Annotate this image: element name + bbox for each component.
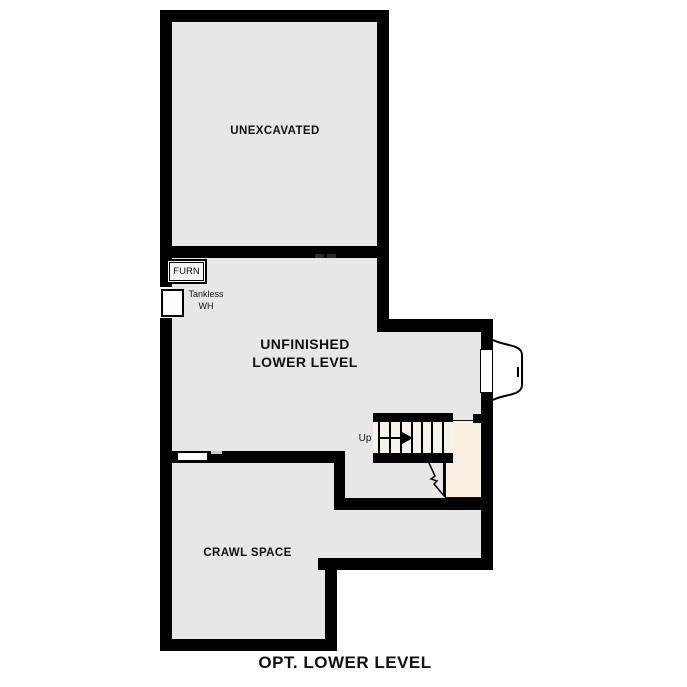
egress-window [480,349,493,393]
stair-tread [442,422,444,453]
stair-top-rail [373,413,453,422]
wall-stub-landing-top [473,414,493,423]
crawl-space-floor-strip [335,508,481,560]
furnace-box-inner: FURN [169,262,204,281]
wall-top [160,10,389,22]
unexcavated-label: UNEXCAVATED [170,125,380,137]
water-heater-label: Tankless WH [184,289,228,312]
wall-right-upper [377,10,389,331]
stair-tread [421,422,423,453]
water-heater-box [161,289,184,317]
up-arrow-head [402,432,413,444]
plan-title: OPT. LOWER LEVEL [150,653,540,673]
lower-level-label: UNFINISHED LOWER LEVEL [205,335,405,371]
furnace-label: FURN [173,266,199,277]
wall-strip-bottom [318,558,493,570]
wall-crawl-bottom [160,639,337,651]
crawl-access-opening [177,452,208,461]
up-arrow-line [378,437,404,439]
wall-unexcavated-divider [160,246,389,258]
floor-plan: Up FURN Tankless WH UNEXCAVATED UNFINISH… [0,0,687,687]
divider-dash-2 [327,254,336,258]
stair-tread [431,422,433,453]
wall-wing-bottom [334,498,493,510]
divider-dash-1 [315,254,324,258]
crawl-space-label: CRAWL SPACE [165,547,330,559]
stair-up-label: Up [356,433,374,444]
stair-break-line [424,460,448,500]
wall-wing-top [377,319,493,332]
wall-mark-light [211,451,222,454]
wall-crawl-right [325,558,337,651]
furnace-box: FURN [166,259,207,284]
window-well [491,330,531,410]
